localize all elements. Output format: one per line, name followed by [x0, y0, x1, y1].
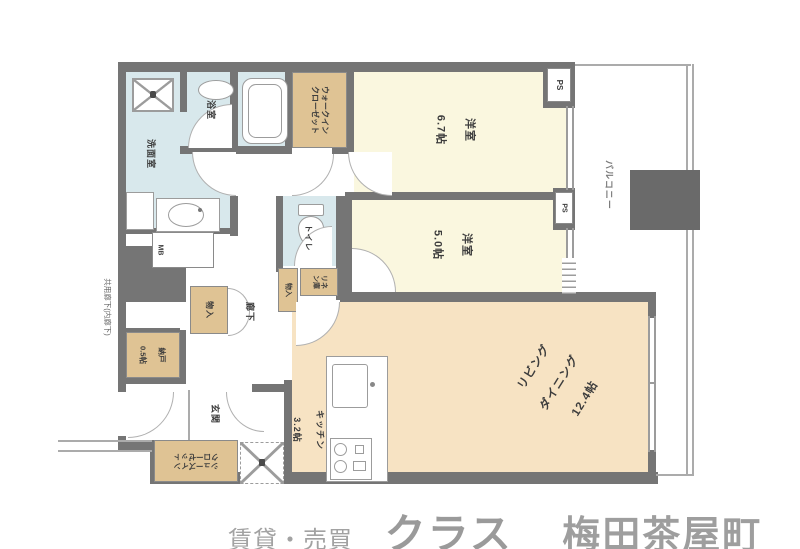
room-size: 0.5帖	[137, 346, 147, 364]
bedroom1-label: 洋室 6.7帖	[419, 115, 490, 145]
approach-line	[58, 450, 152, 452]
kitchen-faucet-icon	[370, 382, 375, 387]
toilet-tank	[298, 204, 324, 216]
stove-burner	[334, 460, 347, 473]
window-line	[648, 316, 650, 452]
balcony-outline	[656, 474, 694, 476]
room-name: 洋室	[459, 230, 473, 260]
window-line	[572, 106, 574, 190]
bathtub-inner	[248, 84, 282, 138]
shoes-closet-label: シューズインクローゼット	[171, 452, 221, 471]
front-door-arc	[128, 392, 174, 438]
window-line	[572, 228, 574, 258]
bedroom2-label: 洋室 5.0帖	[416, 230, 487, 260]
wall-segment	[340, 292, 656, 302]
pipe-space-label-top: PS	[554, 80, 564, 91]
wall-segment	[276, 196, 283, 272]
washbasin-faucet-icon	[198, 208, 202, 212]
linen-label: リネン庫	[311, 274, 327, 290]
wall-segment	[347, 72, 354, 154]
storage-nando-label: 納戸 0.5帖	[128, 346, 177, 364]
balcony-partition	[630, 170, 700, 230]
kitchen-sink	[332, 364, 368, 408]
wall-segment	[180, 72, 187, 112]
balcony-outline	[692, 64, 694, 476]
window-mullion	[648, 382, 656, 384]
room-name: 納戸	[157, 346, 167, 364]
entrance-label: 玄関	[208, 404, 220, 424]
stove-grill	[353, 461, 366, 471]
walkin-closet-label: ウォークインクローゼット	[309, 84, 330, 136]
meter-box-label: MB	[155, 245, 164, 256]
bath-label: 浴室	[204, 100, 216, 120]
approach-line	[58, 440, 152, 442]
wall-segment	[648, 450, 656, 484]
hallway-label: 廊下	[243, 302, 255, 322]
cabinet	[126, 192, 154, 230]
balcony-label: バルコニー	[602, 160, 614, 210]
room-name: キッチン	[314, 410, 326, 450]
brand-store-text: 梅田茶屋町店	[562, 504, 800, 549]
room-size: 3.2帖	[290, 410, 302, 450]
closet-wc-label: 物入	[283, 283, 292, 297]
walkin-closet-door-arc	[292, 154, 334, 196]
floorplan-canvas: 洋室 6.7帖 洋室 5.0帖 リビング ダイニング 12.4帖 キッチン 3.…	[0, 0, 800, 549]
room-size: 6.7帖	[434, 115, 448, 145]
stove-burner-small	[355, 445, 364, 454]
balcony-outline	[686, 64, 688, 476]
entrance-step-line	[188, 390, 190, 446]
shutter-box-hatch	[562, 258, 576, 294]
window-line	[566, 106, 568, 190]
washbasin-bowl	[168, 203, 204, 227]
wall-segment	[118, 62, 126, 392]
entrance-hall-door-arc	[226, 392, 264, 432]
pipe-space-label-mid: PS	[559, 203, 568, 212]
room-name: 洋室	[462, 115, 476, 145]
wall-segment	[118, 62, 575, 72]
washroom-label: 洗面室	[144, 139, 156, 169]
common-corridor-note: 共用廊下(内廊下)	[102, 278, 112, 336]
faucet-icon	[150, 91, 156, 98]
window-line	[654, 316, 656, 452]
bath-counter-oval	[198, 80, 234, 100]
closet-hall-label: 物入	[204, 301, 214, 319]
brand-logo-text: クラスモ	[385, 500, 555, 549]
balcony-outline	[575, 64, 691, 66]
footer-branding: 賃貸・売買の クラスモ 梅田茶屋町店	[228, 500, 800, 546]
window-line	[566, 228, 568, 258]
brand-prefix-text: 賃貸・売買の	[228, 520, 377, 549]
kitchen-label: キッチン 3.2帖	[279, 410, 337, 450]
room-size: 5.0帖	[431, 230, 445, 260]
refrigerator-icon	[259, 459, 265, 466]
toilet-label: トイレ	[303, 225, 313, 252]
wall-segment	[336, 196, 352, 300]
